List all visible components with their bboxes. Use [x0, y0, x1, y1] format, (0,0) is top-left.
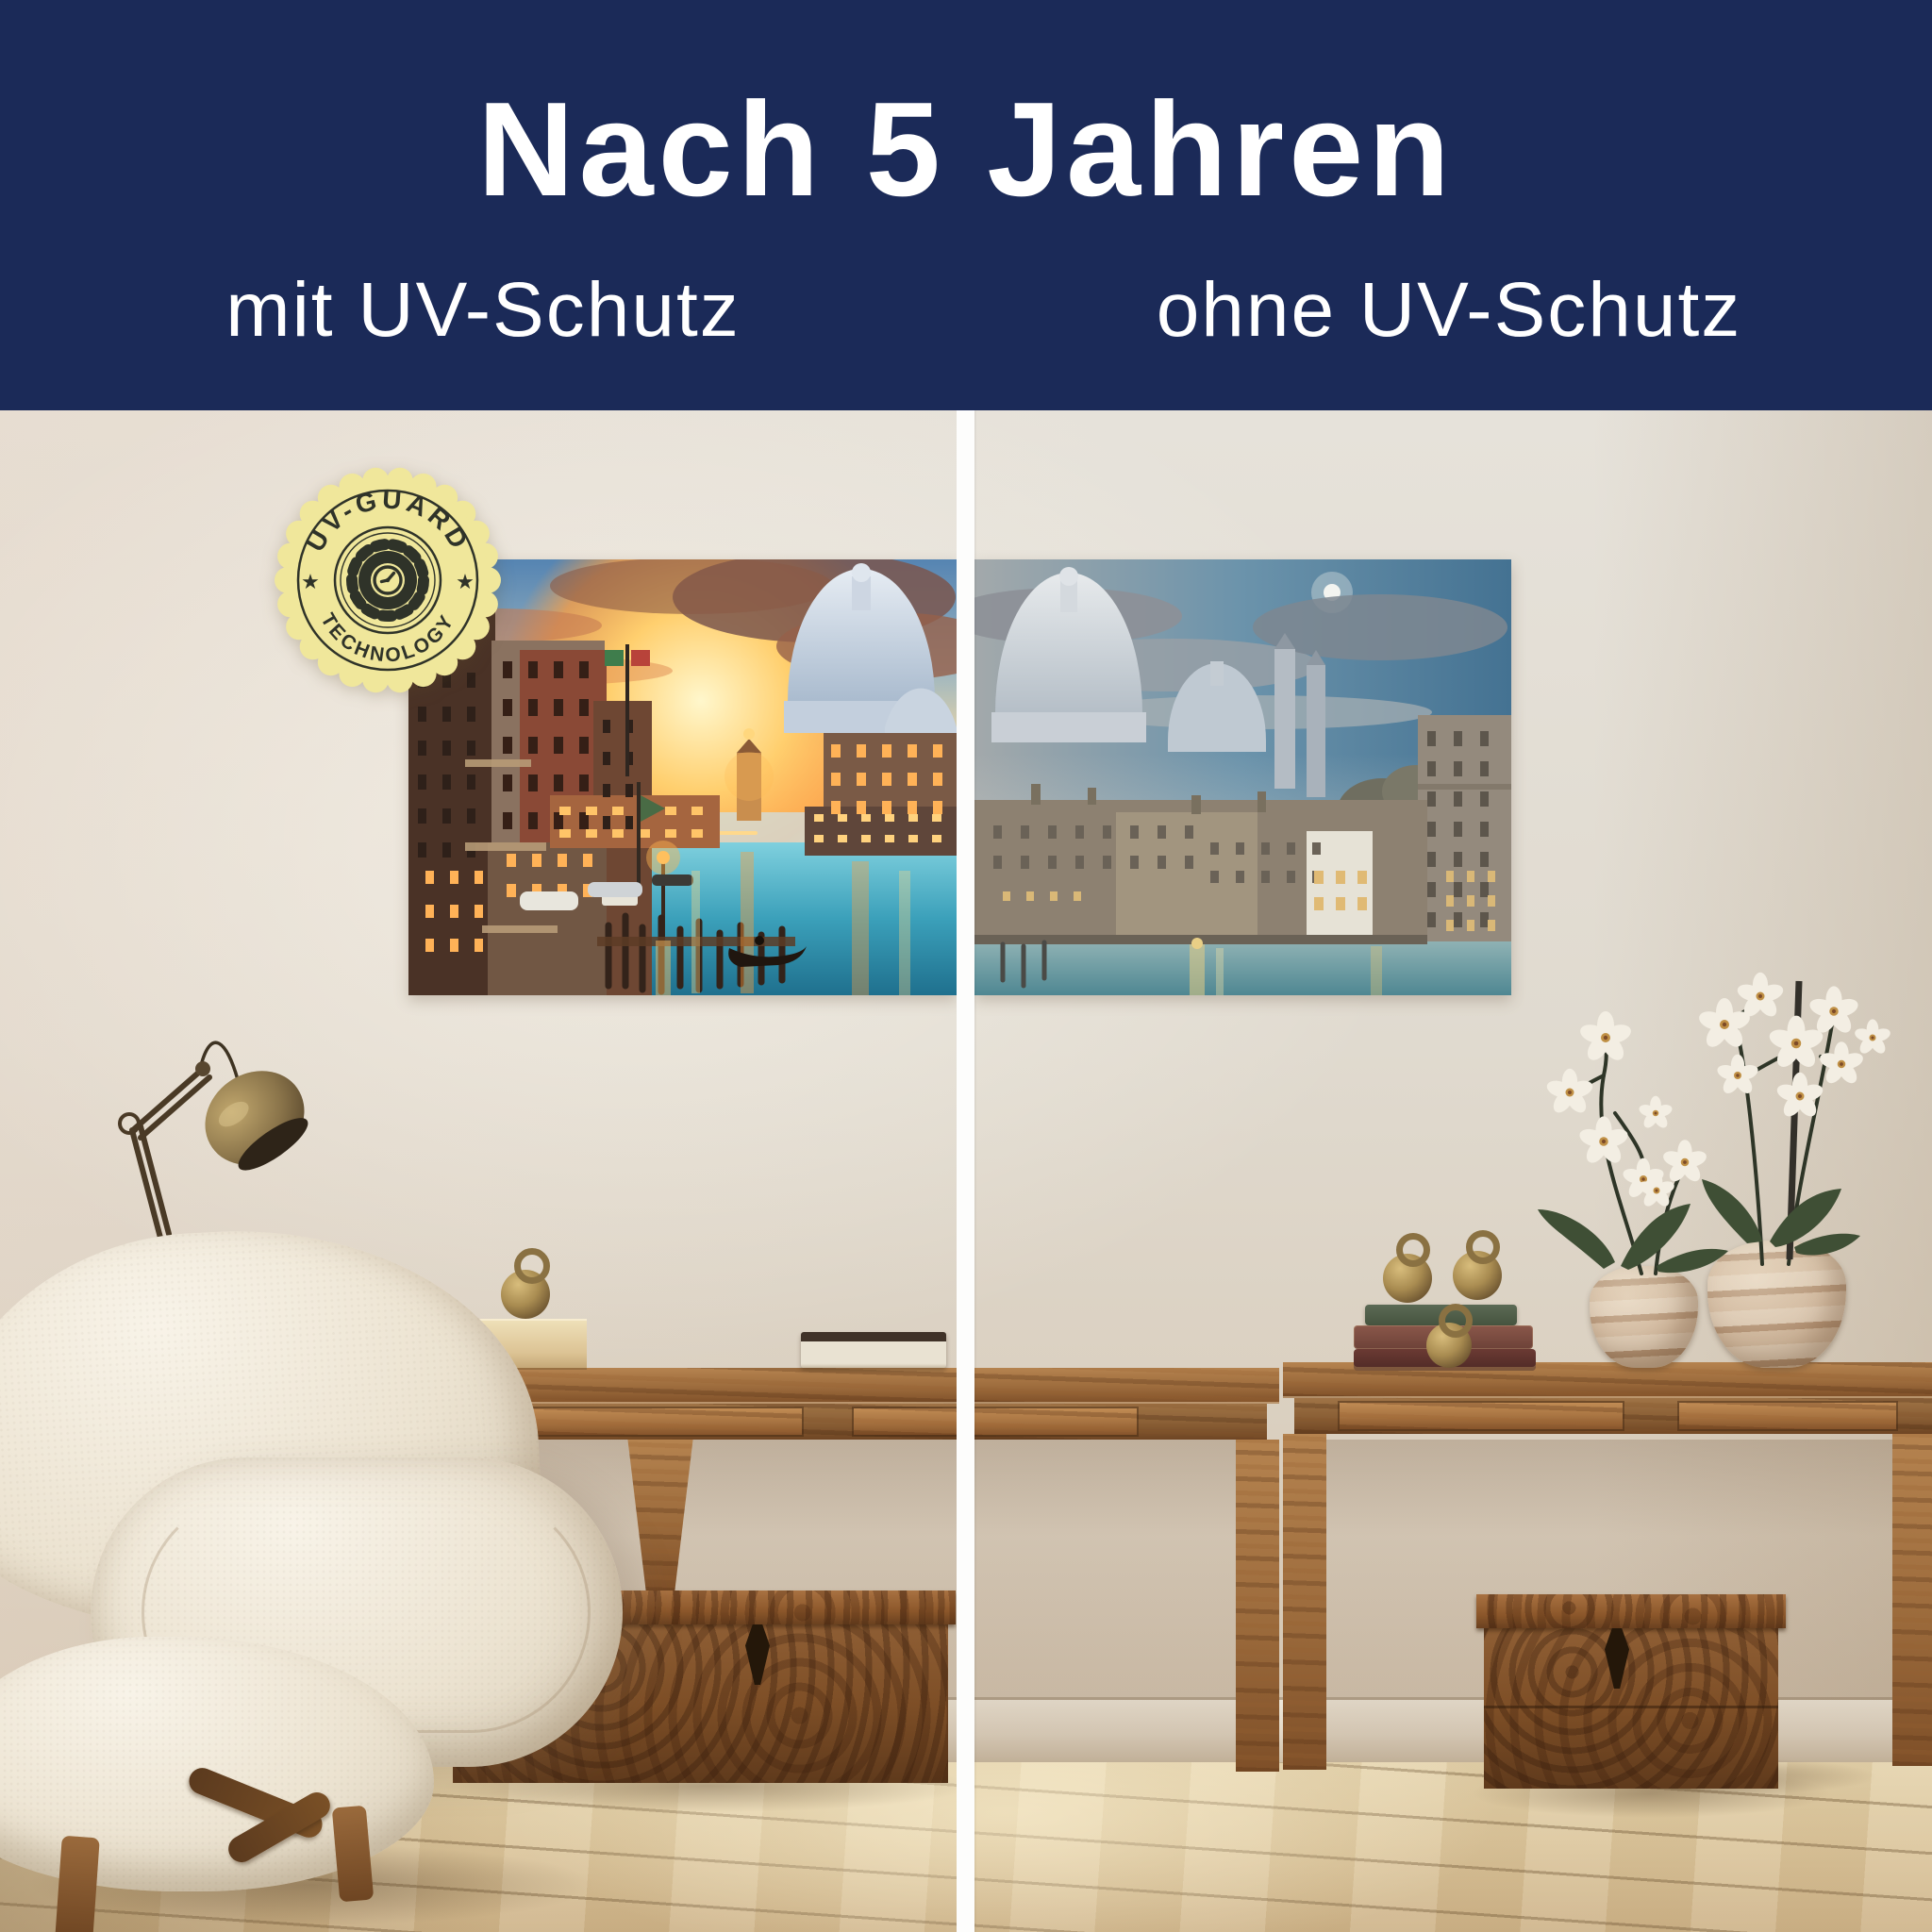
table-leg: [1892, 1434, 1932, 1766]
artwork-without-uv-protection: [974, 559, 1511, 995]
book-on-table: [801, 1332, 946, 1368]
table-leg: [1283, 1434, 1326, 1770]
drawer-front: [509, 1408, 802, 1435]
drawer-front: [1679, 1403, 1896, 1429]
chair-leg: [55, 1836, 100, 1932]
table-leg: [1236, 1440, 1279, 1772]
label-without-uv: ohne UV-Schutz: [966, 272, 1932, 349]
header-band: Nach 5 Jahren mit UV-Schutz ohne UV-Schu…: [0, 0, 1932, 410]
vase-large: [1707, 1241, 1846, 1368]
drawer-front: [1340, 1403, 1623, 1429]
uv-guard-badge: UV-GUARD TECHNOLOGY ★ ★: [275, 467, 501, 693]
drawer-front: [854, 1408, 1137, 1435]
gear-clock-icon: [352, 544, 424, 616]
brass-ball-handle: [1396, 1233, 1430, 1267]
living-room-photo: UV-GUARD TECHNOLOGY ★ ★: [0, 410, 1932, 1932]
vase-small: [1590, 1266, 1698, 1368]
headline: Nach 5 Jahren: [0, 83, 1932, 217]
star-icon: ★: [456, 570, 475, 593]
split-divider: [957, 410, 974, 1932]
wooden-chest-right: [1484, 1594, 1778, 1789]
brass-bell-front-handle: [1439, 1304, 1473, 1338]
venice-faded-scene: [974, 559, 1511, 995]
star-icon: ★: [301, 570, 320, 593]
promo-image: Nach 5 Jahren mit UV-Schutz ohne UV-Schu…: [0, 0, 1932, 1932]
brass-ball-handle: [1466, 1230, 1500, 1264]
brass-bell-handle: [514, 1248, 550, 1284]
label-with-uv: mit UV-Schutz: [0, 272, 966, 349]
